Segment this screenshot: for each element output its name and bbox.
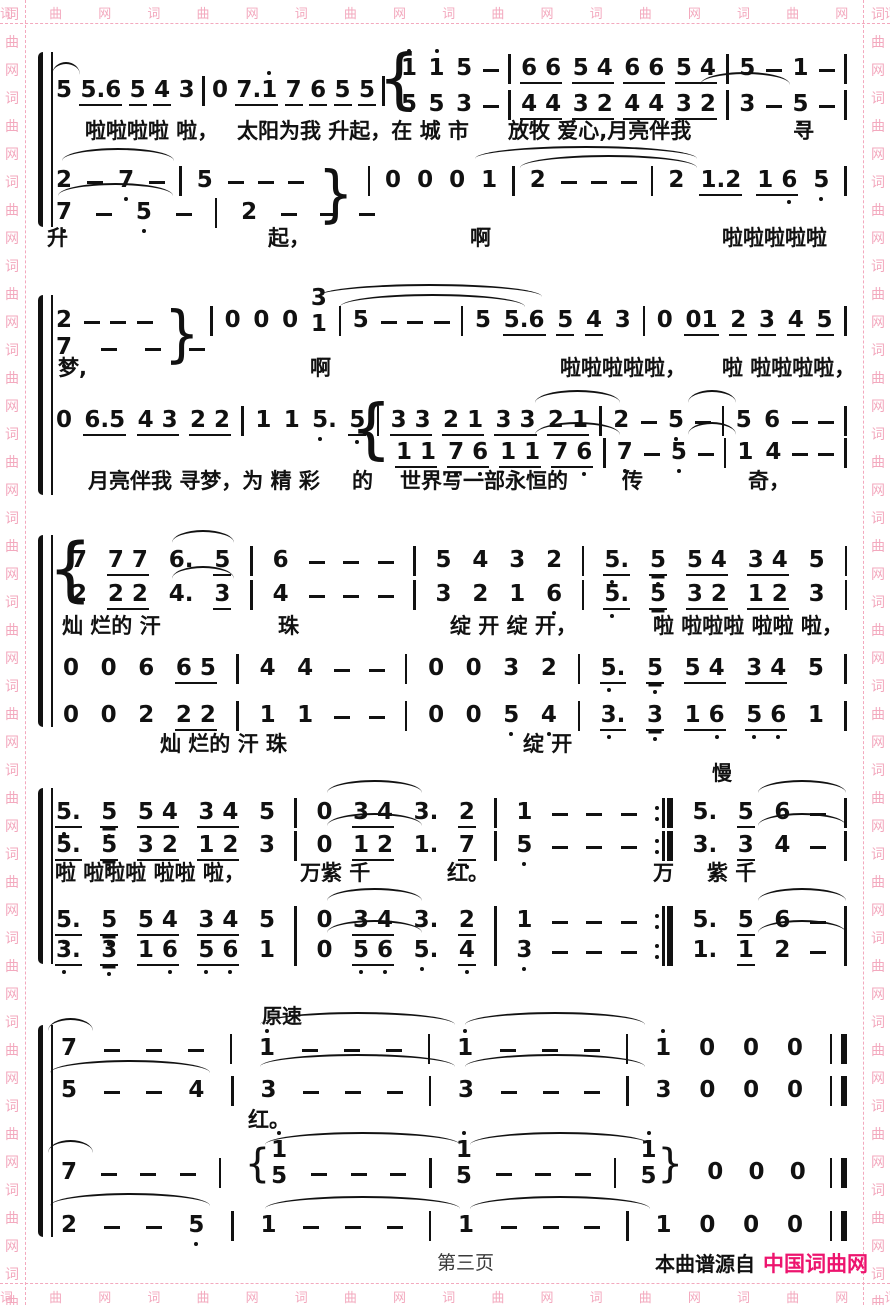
duration-dash xyxy=(535,1173,551,1176)
note-token: 4 xyxy=(787,309,805,336)
duration-dash xyxy=(501,1091,517,1094)
duration-dash xyxy=(483,105,499,108)
duration-dash xyxy=(140,1173,156,1176)
note-token: 1 1 xyxy=(395,441,437,468)
note-token: 0 xyxy=(747,1161,765,1188)
note-token: 3 4 xyxy=(197,801,239,828)
note-token: 1 xyxy=(254,409,272,436)
lyric-text: 起， xyxy=(268,222,310,252)
note-token xyxy=(662,936,665,966)
duration-dash xyxy=(146,1226,162,1229)
barline xyxy=(845,580,848,610)
note-token: 5 xyxy=(455,57,473,84)
duration-dash xyxy=(258,181,274,184)
chord: {15 xyxy=(245,1139,288,1188)
note-token: 5. xyxy=(692,801,719,828)
duration-dash xyxy=(584,1226,600,1229)
duration-dash xyxy=(381,321,397,324)
duration-dash xyxy=(334,716,350,719)
barline xyxy=(230,1034,233,1064)
barline xyxy=(413,546,416,576)
note-token: 0 xyxy=(789,1161,807,1188)
duration-dash xyxy=(819,105,835,108)
note-token: 5. xyxy=(55,801,82,828)
note-token: 7.1 xyxy=(235,79,278,106)
note-token: 5.6 xyxy=(79,79,122,106)
notation-row: 0066 54400325.55 43 45 xyxy=(62,648,847,684)
note-token: 2 2 xyxy=(175,704,217,731)
note-token: 1 1 xyxy=(499,441,541,468)
note-token: 0 xyxy=(100,704,118,731)
barline xyxy=(626,1076,629,1106)
duration-dash xyxy=(496,1173,512,1176)
note-token: 0 xyxy=(698,1079,716,1106)
duration-dash xyxy=(621,846,637,849)
note-token xyxy=(662,798,665,828)
duration-dash xyxy=(369,716,385,719)
notation-row: 7111000 xyxy=(60,1028,847,1064)
note-token: 0 xyxy=(742,1037,760,1064)
note-token: 2 xyxy=(60,1214,78,1241)
barline xyxy=(614,1158,617,1188)
duration-dash xyxy=(407,321,423,324)
duration-dash xyxy=(810,951,826,954)
octave-dot-above xyxy=(435,49,439,53)
barline xyxy=(250,546,253,576)
duration-dash xyxy=(387,1226,403,1229)
note-token: 5 6 xyxy=(197,939,239,966)
lyric-text: 红。 xyxy=(248,1104,290,1134)
note-token: 1 xyxy=(260,1214,278,1241)
lyric-text: 啦啦啦啦啦 xyxy=(722,222,827,252)
duration-dash xyxy=(586,846,602,849)
notation-row: 0022 21100543.31 65 61 xyxy=(62,695,847,731)
octave-dot-below xyxy=(318,437,322,441)
duration-dash xyxy=(584,1049,600,1052)
barline xyxy=(578,654,581,684)
duration-dash xyxy=(351,1173,367,1176)
note-token: 5 4 xyxy=(686,549,728,576)
barline xyxy=(429,1158,432,1188)
barline xyxy=(236,701,239,731)
barline xyxy=(494,798,497,828)
barline xyxy=(578,701,581,731)
notation-row: 5.53 21 2301 21.753.34 xyxy=(55,825,847,861)
lyric-text: 绽 开 xyxy=(523,728,572,758)
barline xyxy=(294,798,297,828)
lyric-row: 月亮伴我 寻梦，为 精 彩的世界写一部永恒的传奇， xyxy=(0,465,890,491)
final-barline xyxy=(830,1158,847,1188)
duration-dash xyxy=(343,561,359,564)
duration-dash xyxy=(101,348,117,351)
duration-dash xyxy=(792,453,808,456)
barline xyxy=(845,546,848,576)
duration-dash xyxy=(621,813,637,816)
duration-dash xyxy=(552,846,568,849)
note-token: 1 xyxy=(258,939,276,966)
lyric-text: 万紫 千 xyxy=(300,857,370,887)
note-token: 1.2 xyxy=(699,169,742,196)
note-token: 1 xyxy=(736,441,754,468)
duration-dash xyxy=(766,69,782,72)
duration-dash xyxy=(309,595,325,598)
duration-dash xyxy=(104,1049,120,1052)
barline xyxy=(405,701,408,731)
note-token: 1 6 xyxy=(684,704,726,731)
note-token: 1 xyxy=(508,583,526,610)
note-token: 5 4 xyxy=(572,57,614,84)
note-token: 3 2 xyxy=(686,583,728,610)
lyric-row: 升起，啊啦啦啦啦啦 xyxy=(0,222,890,248)
note-token: 3 xyxy=(655,1079,673,1106)
watermark-top: 词 曲 网 词 曲 网 词 曲 网 词 曲 网 词 曲 网 词 曲 网 词 曲 … xyxy=(0,3,890,22)
note-token: 3 xyxy=(310,287,328,310)
duration-dash xyxy=(146,1049,162,1052)
chord-brace: } xyxy=(658,1146,683,1182)
lyric-text: 啊 xyxy=(470,222,491,252)
duration-dash xyxy=(792,421,808,424)
watermark-border-line-top xyxy=(0,23,890,24)
chord-brace: { xyxy=(245,1146,270,1182)
note-token: 5 xyxy=(816,309,834,336)
note-token: 3 xyxy=(100,939,118,966)
note-token: 6 xyxy=(272,549,290,576)
octave-dot-below xyxy=(194,1242,198,1246)
note-token: 1. xyxy=(692,939,719,966)
slur-arc xyxy=(172,530,234,544)
barline xyxy=(844,306,847,336)
lyric-text: 万 xyxy=(653,857,674,887)
barline xyxy=(231,1076,234,1106)
note-token: 4 xyxy=(764,441,782,468)
duration-dash xyxy=(176,213,192,216)
note-token: 0 xyxy=(224,309,242,336)
notation-row: 25111000 xyxy=(60,1205,847,1241)
octave-dot-above xyxy=(661,1029,665,1033)
duration-dash xyxy=(621,181,637,184)
notation-row: 1 17 61 17 67514 xyxy=(395,432,847,468)
duration-dash xyxy=(302,1049,318,1052)
slur-arc xyxy=(62,148,174,162)
sheet-music-page: 词 曲 网 词 曲 网 词 曲 网 词 曲 网 词 曲 网 词 曲 网 词 曲 … xyxy=(0,0,890,1305)
repeat-dots xyxy=(655,839,659,854)
note-token: 5. xyxy=(603,583,630,610)
duration-dash xyxy=(345,1091,361,1094)
duration-dash xyxy=(575,1173,591,1176)
octave-dot-below xyxy=(420,967,424,971)
note-token: 3 xyxy=(508,549,526,576)
octave-dot-above xyxy=(647,1131,651,1135)
note-token: 6 xyxy=(309,79,327,106)
note-token: 5 6 xyxy=(352,939,394,966)
duration-dash xyxy=(137,321,153,324)
footer: 第三页 本曲谱源自 中国词曲网 xyxy=(0,1248,890,1278)
note-token xyxy=(667,936,673,966)
barline xyxy=(844,936,847,966)
slur-arc xyxy=(688,390,736,404)
note-token: 5 4 xyxy=(684,657,726,684)
note-token: 0 xyxy=(281,309,299,336)
watermark-border-line-bottom xyxy=(0,1283,890,1284)
slur-arc xyxy=(265,1196,460,1210)
octave-dot-below xyxy=(653,690,657,694)
note-token xyxy=(667,798,673,828)
lyric-text: 啦 啦啦啦 啦啦 啦， xyxy=(653,610,843,640)
lyric-row: 灿 烂的 汗 珠绽 开 xyxy=(0,728,890,754)
note-token: 5 4 xyxy=(137,801,179,828)
tempo-mark: 原速 xyxy=(262,1000,302,1029)
note-token: 1 6 xyxy=(137,939,179,966)
duration-dash xyxy=(543,1091,559,1094)
note-token: 5 xyxy=(100,801,118,828)
lyric-row: 灿 烂的 汗珠绽 开 绽 开，啦 啦啦啦 啦啦 啦， xyxy=(0,610,890,636)
slur-arc xyxy=(327,888,422,902)
note-token: 0 xyxy=(427,657,445,684)
slur-arc xyxy=(52,62,80,76)
lyric-text: 太阳为我 升起，在 城 市 xyxy=(237,115,469,145)
lyric-text: 传 xyxy=(622,465,643,495)
notation-row: 5.55 43 4503 43.215.56 xyxy=(55,792,847,828)
note-token: 3 xyxy=(178,79,196,106)
note-token: 0 xyxy=(786,1079,804,1106)
note-token: 5 xyxy=(358,79,376,106)
note-token: 3 xyxy=(502,657,520,684)
note-token: 7 xyxy=(616,441,634,468)
duration-dash xyxy=(542,1049,558,1052)
note-token: 4 xyxy=(153,79,171,106)
duration-dash xyxy=(819,69,835,72)
note-token: 5 xyxy=(258,801,276,828)
repeat-dots xyxy=(655,944,659,959)
slur-arc xyxy=(50,1193,210,1207)
system-bracket xyxy=(38,1025,53,1237)
note-token: 7 6 xyxy=(551,441,593,468)
lyric-text: 世界写一部永恒的 xyxy=(400,465,568,495)
note-token: 6 6 xyxy=(623,57,665,84)
note-token: 0 xyxy=(786,1037,804,1064)
slur-arc xyxy=(470,1132,650,1146)
note-token: 4 xyxy=(296,657,314,684)
note-token: 5 xyxy=(474,309,492,336)
barline xyxy=(508,54,511,84)
barline xyxy=(429,1211,432,1241)
chord-stack: 15 xyxy=(270,1139,288,1188)
note-token: 2 xyxy=(458,801,476,828)
barline xyxy=(339,306,342,336)
system-bracket xyxy=(38,52,53,227)
duration-dash xyxy=(309,561,325,564)
barline xyxy=(651,166,654,196)
duration-dash xyxy=(145,348,161,351)
duration-dash xyxy=(180,1173,196,1176)
octave-dot-below xyxy=(522,967,526,971)
duration-dash xyxy=(228,181,244,184)
duration-dash xyxy=(543,1226,559,1229)
notation-row: 55.654307.17655 xyxy=(55,70,385,106)
duration-dash xyxy=(281,213,297,216)
duration-dash xyxy=(378,595,394,598)
duration-dash xyxy=(96,213,112,216)
note-token: 3 xyxy=(646,704,664,731)
lyric-text: 啦 啦啦啦啦， xyxy=(722,352,855,382)
duration-dash xyxy=(188,1049,204,1052)
duration-dash xyxy=(561,181,577,184)
duration-dash xyxy=(311,1173,327,1176)
note-token: 0 xyxy=(698,1037,716,1064)
barline xyxy=(461,306,464,336)
slur-arc xyxy=(758,888,846,902)
octave-dot-below xyxy=(62,970,66,974)
note-token: 1 xyxy=(296,704,314,731)
duration-dash xyxy=(320,213,336,216)
note-token: 1 2 xyxy=(747,583,789,610)
duration-dash xyxy=(104,1091,120,1094)
repeat-dots xyxy=(655,914,659,929)
note-token: 6.5 xyxy=(83,409,126,436)
lyric-text: 的 xyxy=(352,465,373,495)
notation-row: 275}0001221.21 65 xyxy=(55,160,847,196)
system-bracket xyxy=(38,788,53,964)
duration-dash xyxy=(303,1091,319,1094)
note-token: 5 6 xyxy=(745,704,787,731)
note-token: 4 3 xyxy=(137,409,179,436)
divisi-brace: { xyxy=(350,396,392,462)
octave-dot-below xyxy=(228,970,232,974)
tempo-mark: 慢 xyxy=(712,757,732,786)
note-token: 2 xyxy=(529,169,547,196)
note-token: 0 xyxy=(315,939,333,966)
duration-dash xyxy=(501,1226,517,1229)
lyric-text: 啦啦啦啦啦， xyxy=(560,352,686,382)
note-token: 6 5 xyxy=(175,657,217,684)
note-token: 2 2 xyxy=(107,583,149,610)
note-token: 7 xyxy=(60,1161,78,1188)
barline xyxy=(405,654,408,684)
lyric-row: 啦 啦啦啦 啦啦 啦，万紫 千红。万紫 千 xyxy=(0,857,890,883)
barline xyxy=(626,1211,629,1241)
barline xyxy=(582,580,585,610)
note-token: 3. xyxy=(55,939,82,966)
notation-row: 54333000 xyxy=(60,1070,847,1106)
barline xyxy=(844,166,847,196)
note-token: 4 xyxy=(187,1079,205,1106)
note-token: 6 xyxy=(545,583,563,610)
chord: 15} xyxy=(640,1139,683,1188)
note-token: 2 xyxy=(540,657,558,684)
duration-dash xyxy=(434,321,450,324)
watermark-bottom: 词 曲 网 词 曲 网 词 曲 网 词 曲 网 词 曲 网 词 曲 网 词 曲 … xyxy=(0,1287,890,1305)
lyric-text: 啦啦啦啦 啦， xyxy=(85,115,218,145)
note-token: 5 xyxy=(670,441,688,468)
note-token: 0 xyxy=(252,309,270,336)
note-token: 0 xyxy=(416,169,434,196)
note-token: 3 xyxy=(758,309,776,336)
octave-dot-below xyxy=(107,972,111,976)
note-token: 0 xyxy=(448,169,466,196)
lyric-text: 放牧 爱心,月亮伴我 xyxy=(508,115,691,145)
lyric-text: 珠 xyxy=(278,610,299,640)
note-token: 01 xyxy=(684,309,718,336)
octave-dot-above xyxy=(265,1029,269,1033)
octave-dot-below xyxy=(359,970,363,974)
repeat-barline xyxy=(655,798,673,828)
barline xyxy=(429,1076,432,1106)
note-token: 1 xyxy=(457,1214,475,1241)
duration-dash xyxy=(591,181,607,184)
octave-dot-below xyxy=(168,970,172,974)
duration-dash xyxy=(621,921,637,924)
note-token: 2 2 xyxy=(189,409,231,436)
duration-dash xyxy=(189,348,205,351)
lyric-text: 梦, xyxy=(58,352,87,382)
barline xyxy=(512,166,515,196)
note-token: 5 xyxy=(737,801,755,828)
lyric-text: 灿 烂的 汗 珠 xyxy=(160,728,287,758)
duration-dash xyxy=(584,1091,600,1094)
duration-dash xyxy=(552,921,568,924)
note-token: 4 xyxy=(259,657,277,684)
barline xyxy=(844,654,847,684)
note-token: 2 xyxy=(729,309,747,336)
note-token: 3 xyxy=(614,309,632,336)
slur-arc xyxy=(265,1132,460,1146)
note-token: 6 6 xyxy=(520,57,562,84)
note-token: 0 xyxy=(465,704,483,731)
note-token: 5. xyxy=(311,409,338,436)
note-token: 7 xyxy=(285,79,303,106)
duration-dash xyxy=(390,1173,406,1176)
note-token: 2 xyxy=(667,169,685,196)
note-token: 5 xyxy=(640,1165,658,1188)
chord-stack: 15 xyxy=(640,1139,658,1188)
note-token: 5 xyxy=(55,79,73,106)
octave-dot-below xyxy=(465,970,469,974)
footer-source-prefix: 本曲谱源自 xyxy=(655,1248,755,1277)
note-token: 0 xyxy=(786,1214,804,1241)
slur-arc xyxy=(535,390,620,404)
final-barline xyxy=(830,1211,847,1241)
duration-dash xyxy=(500,1049,516,1052)
duration-dash xyxy=(345,1226,361,1229)
note-token: 5 xyxy=(270,1165,288,1188)
note-token: 5 xyxy=(129,79,147,106)
octave-dot-above xyxy=(267,71,271,75)
note-token: 6 xyxy=(137,657,155,684)
lyric-text: 啦 啦啦啦 啦啦 啦， xyxy=(55,857,245,887)
note-token: 4 xyxy=(272,583,290,610)
note-token: 1 xyxy=(456,1037,474,1064)
barline xyxy=(202,76,205,106)
note-token: 1 xyxy=(791,57,809,84)
barline xyxy=(494,936,497,966)
note-token: 4 xyxy=(585,309,603,336)
note-token: 0 xyxy=(698,1214,716,1241)
notation-row: 3.31 65 6105 65.431.12 xyxy=(55,930,847,966)
barline xyxy=(210,306,213,336)
note-token: 1 xyxy=(654,1037,672,1064)
duration-dash xyxy=(586,813,602,816)
note-token: 7 7 xyxy=(107,549,149,576)
slur-arc xyxy=(465,1012,645,1026)
duration-dash xyxy=(641,421,657,424)
note-token: 0 xyxy=(742,1079,760,1106)
note-token: 3 xyxy=(434,583,452,610)
slur-arc xyxy=(470,1196,650,1210)
note-token: 5 xyxy=(60,1079,78,1106)
duration-dash xyxy=(818,421,834,424)
note-token: 5 xyxy=(807,657,825,684)
duration-dash xyxy=(586,921,602,924)
